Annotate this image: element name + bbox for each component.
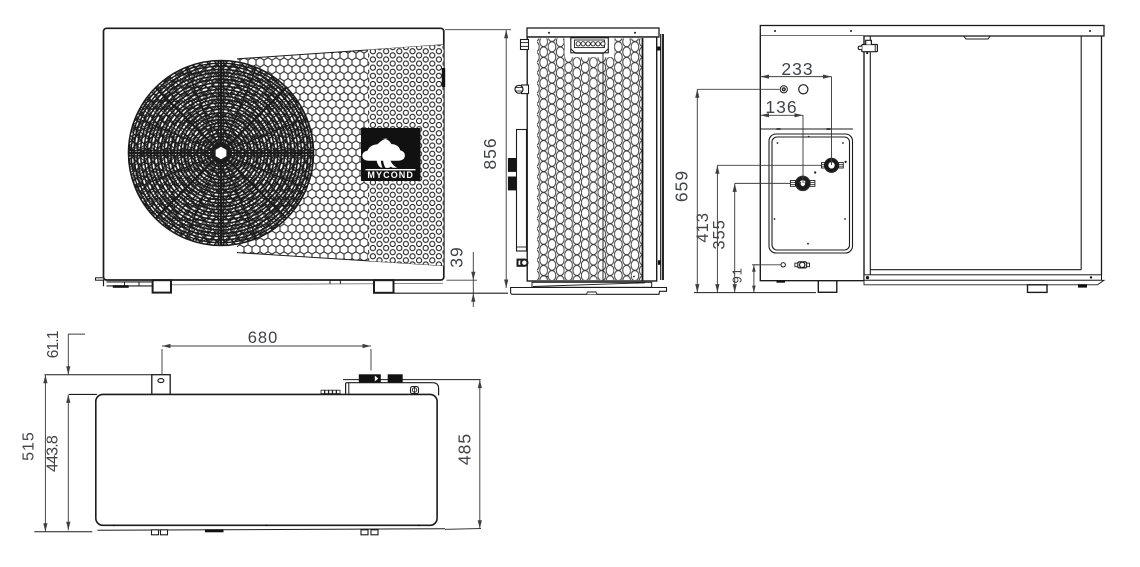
svg-text:856: 856 — [480, 137, 500, 169]
svg-text:515: 515 — [21, 431, 38, 461]
svg-text:136: 136 — [765, 97, 797, 117]
svg-text:659: 659 — [672, 170, 692, 202]
svg-text:485: 485 — [455, 433, 475, 465]
svg-text:233: 233 — [781, 59, 813, 79]
svg-text:443.8: 443.8 — [45, 435, 62, 472]
svg-text:39: 39 — [446, 246, 466, 267]
svg-text:413: 413 — [694, 212, 712, 243]
svg-text:355: 355 — [711, 219, 729, 250]
svg-text:MYCOND: MYCOND — [367, 170, 414, 180]
svg-text:61.1: 61.1 — [45, 331, 62, 358]
svg-text:91: 91 — [730, 267, 745, 283]
svg-text:680: 680 — [248, 329, 279, 347]
